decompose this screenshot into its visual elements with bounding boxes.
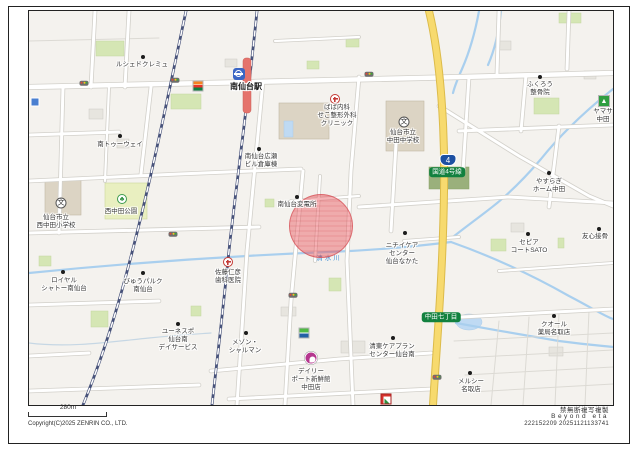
traffic-signal-icon <box>169 232 178 237</box>
poi-label: やすらぎホーム中田 <box>533 178 565 194</box>
poi-label: デイリーポート新鮮館中田店 <box>292 368 331 392</box>
traffic-signal-icon <box>289 293 298 298</box>
poi-dot[interactable] <box>141 55 145 59</box>
map-canvas[interactable]: ルシェドクレミュ南トゥーウェイ南仙台駅南仙台広瀬ビル倉庫棟ばば内科せこ整形外科ク… <box>28 10 614 406</box>
traffic-signal-icon <box>171 78 180 83</box>
poi-label: 清東ケアプランセンター仙台南 <box>369 343 415 359</box>
road-name-badge: 国道4号線 <box>429 167 465 177</box>
school-icon[interactable]: 文 <box>56 198 67 209</box>
poi-label: クオール薬局名取店 <box>538 321 571 337</box>
poi-label: 西中田公園 <box>105 208 138 216</box>
poi-dot[interactable] <box>597 227 601 231</box>
poi-label: 南仙台広瀬ビル倉庫棟 <box>245 153 278 169</box>
copyright-text: Copyright(C)2025 ZENRIN CO., LTD. <box>28 421 128 427</box>
store-yamasa-icon[interactable]: ▲ <box>598 95 610 107</box>
poi-label: メルシー名取店 <box>458 378 484 394</box>
road-name-badge: 中田七丁目 <box>422 312 461 322</box>
poi-layer: ルシェドクレミュ南トゥーウェイ南仙台駅南仙台広瀬ビル倉庫棟ばば内科せこ整形外科ク… <box>29 11 613 405</box>
poi-label: ヤマサ中田 <box>593 108 613 124</box>
poi-dot[interactable] <box>538 75 542 79</box>
poi-label: ルシェドクレミュ <box>116 61 168 69</box>
poi-label: ユーネスポ仙台南デイサービス <box>159 328 198 352</box>
store-seven-icon[interactable] <box>193 81 204 92</box>
poi-dot[interactable] <box>468 371 472 375</box>
poi-dot[interactable] <box>118 134 122 138</box>
poi-dot[interactable] <box>61 270 65 274</box>
poi-dot[interactable] <box>257 147 261 151</box>
poi-label: 仙台市立中田中学校 <box>387 129 420 145</box>
serial-number: 222152209 20251121133741 <box>524 421 609 427</box>
station-icon[interactable] <box>233 68 245 80</box>
store-blue-icon[interactable] <box>31 98 40 107</box>
poi-label: 南仙台変電所 <box>278 201 317 209</box>
store-famima-icon[interactable] <box>299 328 310 339</box>
scale-bar <box>28 412 107 417</box>
poi-label: 南仙台駅 <box>230 82 262 91</box>
poi-label: びゅうパルク南仙台 <box>124 278 163 294</box>
store-daily-icon[interactable] <box>305 352 318 365</box>
poi-label: ばば内科せこ整形外科クリニック <box>318 104 357 128</box>
poi-dot[interactable] <box>244 331 248 335</box>
poi-label: ニチイケアセンター仙台なかた <box>386 242 419 266</box>
poi-label: セピアコートSATO <box>511 239 548 255</box>
hospital-icon[interactable] <box>223 257 233 267</box>
brand-text: Beyond eta <box>551 413 609 420</box>
poi-dot[interactable] <box>391 336 395 340</box>
store-red-icon[interactable] <box>381 394 392 405</box>
poi-dot[interactable] <box>295 195 299 199</box>
traffic-signal-icon <box>365 72 374 77</box>
poi-label: 仙台市立西中田小学校 <box>37 214 76 230</box>
poi-dot[interactable] <box>141 271 145 275</box>
poi-label: 佐藤仁彦歯科医院 <box>215 269 241 285</box>
poi-label: 南トゥーウェイ <box>97 141 143 149</box>
scale-label: 280m <box>28 404 108 411</box>
poi-dot[interactable] <box>547 171 551 175</box>
poi-label: ロイヤルシャトー南仙台 <box>41 277 87 293</box>
poi-dot[interactable] <box>526 232 530 236</box>
poi-dot[interactable] <box>403 231 407 235</box>
school-icon[interactable]: 文 <box>399 117 410 128</box>
park-icon[interactable]: ♣ <box>117 194 127 204</box>
poi-label: 友心接骨 <box>582 233 608 241</box>
route-shield: 4 <box>440 154 457 166</box>
poi-label: ふくろう整骨院 <box>527 81 553 97</box>
traffic-signal-icon <box>80 81 89 86</box>
poi-label: メゾン・シャルマン <box>229 339 262 355</box>
poi-dot[interactable] <box>176 322 180 326</box>
poi-dot[interactable] <box>552 314 556 318</box>
hospital-icon[interactable] <box>330 94 340 104</box>
traffic-signal-icon <box>433 375 442 380</box>
